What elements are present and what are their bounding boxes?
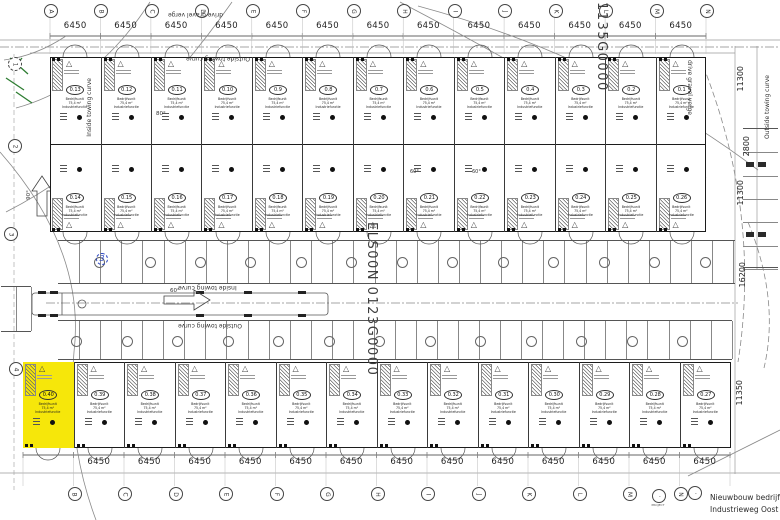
warning-triangle-icon: △ <box>370 60 376 68</box>
meter-box <box>159 228 162 231</box>
fixture-mark <box>691 424 698 425</box>
grid-bubble-left: 3 <box>4 227 18 241</box>
fixture-mark <box>667 116 674 117</box>
grid-letter: 3 <box>7 232 14 236</box>
unit-0-8[interactable]: △0.8Bedrijfsunit 75,4 m² Industriefuncti… <box>302 57 353 145</box>
parking-number-circle <box>475 336 486 347</box>
unit-number: 0.2 <box>622 85 640 95</box>
meter-box <box>664 228 667 231</box>
parking-number-circle <box>599 257 610 268</box>
parking-divider <box>628 241 629 283</box>
meter-box <box>507 228 510 231</box>
stair-hatch <box>507 59 518 91</box>
unit-0-30[interactable]: △0.30Bedrijfsunit 75,4 m² Industriefunct… <box>528 362 579 448</box>
unit-number: 0.26 <box>673 193 691 203</box>
grid-letter: K <box>552 9 559 13</box>
unit-0-10[interactable]: △0.10Bedrijfsunit 75,4 m² Industriefunct… <box>201 57 252 145</box>
parking-divider <box>311 321 312 359</box>
door-swing-icon <box>265 44 291 57</box>
microtext-line <box>89 375 104 376</box>
meter-box <box>582 444 585 447</box>
unit-0-39[interactable]: △0.39Bedrijfsunit 75,4 m² Industriefunct… <box>74 362 125 448</box>
street-label-top: drive gravel verge <box>168 11 223 18</box>
unit-0-7[interactable]: △0.7Bedrijfsunit 75,4 m² Industriefuncti… <box>353 57 404 145</box>
microtext-line <box>317 218 332 219</box>
parking-number-circle <box>296 257 307 268</box>
parking-divider <box>437 321 438 359</box>
unit-0-32[interactable]: △0.32Bedrijfsunit 75,4 m² Industriefunct… <box>427 362 478 448</box>
microtext-line <box>139 378 154 379</box>
fixture-mark <box>539 424 546 425</box>
fixture-mark <box>135 421 142 422</box>
parking-number-circle <box>172 336 183 347</box>
sanitary-dot-icon <box>405 420 410 425</box>
stair-hatch <box>279 364 290 396</box>
parking-number-circle <box>627 336 638 347</box>
fixture-mark <box>515 168 522 169</box>
parking-divider <box>227 241 228 283</box>
warning-triangle-icon: △ <box>697 365 703 373</box>
fixture-mark <box>566 119 573 120</box>
warning-triangle-icon: △ <box>343 365 349 373</box>
parking-number-circle <box>677 336 688 347</box>
unit-info: Bedrijfsunit 75,4 m² Industriefunctie <box>204 97 250 109</box>
meter-box <box>233 444 236 447</box>
microtext-line <box>216 70 231 71</box>
dimension-label: 6450 <box>161 21 191 31</box>
warning-triangle-icon: △ <box>495 365 501 373</box>
microtext-line <box>620 70 635 71</box>
meter-box <box>310 228 313 231</box>
parking-divider <box>521 321 522 359</box>
stair-hatch <box>582 364 593 396</box>
unit-0-14[interactable]: △0.14Bedrijfsunit 75,4 m² Industriefunct… <box>50 145 101 232</box>
dimension-label: 6450 <box>565 21 595 31</box>
warning-triangle-icon: △ <box>471 60 477 68</box>
grid-bubble-top: G <box>347 4 361 18</box>
unit-0-12[interactable]: △0.12Bedrijfsunit 75,4 m² Industriefunct… <box>101 57 152 145</box>
parking-divider <box>743 269 778 270</box>
unit-0-28[interactable]: △0.28Bedrijfsunit 75,4 m² Industriefunct… <box>629 362 680 448</box>
grid-bubble-bottom: C <box>118 487 132 501</box>
fixture-mark <box>590 424 597 425</box>
unit-number: 0.19 <box>319 193 337 203</box>
parking-divider <box>691 241 692 283</box>
sanitary-dot-icon <box>280 115 285 120</box>
warning-triangle-icon: △ <box>471 221 477 229</box>
microtext-line <box>469 218 484 219</box>
fixture-mark <box>263 119 270 120</box>
grid-letter: B <box>71 492 78 496</box>
warning-triangle-icon: △ <box>66 221 72 229</box>
floorplan-page: { "drawing": { "title_line1": "Nieuwbouw… <box>0 0 780 520</box>
fixture-mark <box>515 171 522 172</box>
grid-letter: 4 <box>12 367 19 371</box>
unit-0-2[interactable]: △0.2Bedrijfsunit 75,4 m² Industriefuncti… <box>605 57 656 145</box>
fixture-mark <box>112 168 119 169</box>
fixture-mark <box>515 116 522 117</box>
unit-number: 0.22 <box>471 193 489 203</box>
warning-triangle-icon: △ <box>319 221 325 229</box>
fixture-mark <box>236 421 243 422</box>
microtext-line <box>594 378 609 379</box>
unit-0-27[interactable]: △0.27Bedrijfsunit 75,4 m² Industriefunct… <box>680 362 731 448</box>
warning-triangle-icon: △ <box>269 221 275 229</box>
sanitary-dot-icon <box>684 115 689 120</box>
parking-number-circle <box>273 336 284 347</box>
fixture-mark <box>60 165 67 166</box>
dimension-label: 6450 <box>84 457 114 467</box>
unit-info: Bedrijfsunit 75,4 m² Industriefunctie <box>582 402 628 414</box>
meter-box <box>255 228 258 231</box>
fixture-mark <box>287 418 294 419</box>
unit-number: 0.38 <box>141 390 159 400</box>
fixture-mark <box>112 119 119 120</box>
warning-triangle-icon: △ <box>420 60 426 68</box>
meter-box <box>305 228 308 231</box>
sanitary-dot-icon <box>633 115 638 120</box>
fixture-mark <box>566 116 573 117</box>
fixture-mark <box>465 165 472 166</box>
unit-0-36[interactable]: △0.36Bedrijfsunit 75,4 m² Industriefunct… <box>225 362 276 448</box>
grid-bubble-left: 1 <box>8 57 22 71</box>
warning-triangle-icon: △ <box>673 221 679 229</box>
fixture-mark <box>313 171 320 172</box>
grid-bubble-top: C <box>145 4 159 18</box>
warning-triangle-icon: △ <box>622 221 628 229</box>
meter-box <box>52 58 55 61</box>
grid-bubble-top: K <box>549 4 563 18</box>
parking-divider <box>669 321 670 359</box>
unit-0-6[interactable]: △0.6Bedrijfsunit 75,4 m² Industriefuncti… <box>403 57 454 145</box>
sanitary-dot-icon <box>280 167 285 172</box>
meter-box <box>411 58 414 61</box>
unit-0-18[interactable]: △0.18Bedrijfsunit 75,4 m² Industriefunct… <box>252 145 303 232</box>
dimension-label-vertical: 11300 <box>736 66 745 91</box>
warning-triangle-icon: △ <box>521 60 527 68</box>
fixture-mark <box>640 421 647 422</box>
stair-hatch <box>255 59 266 91</box>
sanitary-dot-icon <box>556 420 561 425</box>
fixture-mark <box>616 119 623 120</box>
microtext-line <box>267 70 282 71</box>
stair-hatch <box>380 364 391 396</box>
parking-divider <box>142 241 143 283</box>
unit-0-33[interactable]: △0.33Bedrijfsunit 75,4 m² Industriefunct… <box>377 362 428 448</box>
dimension-label: 6450 <box>134 457 164 467</box>
unit-0-17[interactable]: △0.17Bedrijfsunit 75,4 m² Industriefunct… <box>201 145 252 232</box>
sanitary-dot-icon <box>129 115 134 120</box>
sanitary-dot-icon <box>607 420 612 425</box>
meter-box <box>255 58 258 61</box>
fixture-mark <box>566 171 573 172</box>
sanitary-dot-icon <box>77 115 82 120</box>
meter-box <box>334 444 337 447</box>
unit-info: Bedrijfsunit 75,4 m² Industriefunctie <box>52 205 98 217</box>
parking-divider <box>459 241 460 283</box>
stair-hatch <box>632 364 643 396</box>
dimension-label: 6450 <box>615 21 645 31</box>
stair-hatch <box>52 59 63 91</box>
microtext-line <box>37 375 52 376</box>
meter-box <box>683 444 686 447</box>
fixture-mark <box>162 168 169 169</box>
meter-box <box>563 228 566 231</box>
parking-divider <box>79 241 80 283</box>
unit-number: 0.34 <box>343 390 361 400</box>
fixture-mark <box>162 119 169 120</box>
unit-0-40[interactable]: △0.40Bedrijfsunit 75,4 m² Industriefunct… <box>23 362 74 448</box>
microtext-line <box>695 378 710 379</box>
unit-0-38[interactable]: △0.38Bedrijfsunit 75,4 m² Industriefunct… <box>124 362 175 448</box>
unit-info: Bedrijfsunit 75,4 m² Industriefunctie <box>632 402 678 414</box>
unit-info: Bedrijfsunit 75,4 m² Industriefunctie <box>305 97 351 109</box>
microtext-line <box>418 70 433 71</box>
parking-divider <box>31 287 32 331</box>
grid-bubble-left: 4 <box>9 362 23 376</box>
warning-triangle-icon: △ <box>521 221 527 229</box>
parking-divider <box>290 241 291 283</box>
fixture-mark <box>566 168 573 169</box>
unit-info: Bedrijfsunit 75,4 m² Industriefunctie <box>25 402 71 414</box>
fixture-mark <box>691 421 698 422</box>
grid-letter: L <box>576 492 583 495</box>
sanitary-dot-icon <box>684 167 689 172</box>
unit-number: 0.10 <box>219 85 237 95</box>
unit-0-5[interactable]: △0.5Bedrijfsunit 75,4 m² Industriefuncti… <box>454 57 505 145</box>
door-swing-icon <box>114 232 140 245</box>
unit-info: Bedrijfsunit 75,4 m² Industriefunctie <box>507 97 553 109</box>
unit-number: 0.16 <box>168 193 186 203</box>
stair-hatch <box>531 364 542 396</box>
grid-bubble-left: 2 <box>8 139 22 153</box>
fixture-mark <box>438 421 445 422</box>
unit-number: 0.15 <box>118 193 136 203</box>
microtext-line <box>519 218 534 219</box>
fixture-mark <box>337 418 344 419</box>
parking-divider <box>690 321 691 359</box>
grid-letter: C <box>121 492 128 496</box>
fixture-mark <box>616 116 623 117</box>
parking-divider <box>100 321 101 359</box>
unit-0-37[interactable]: △0.37Bedrijfsunit 75,4 m² Industriefunct… <box>175 362 226 448</box>
fixture-mark <box>186 424 193 425</box>
meter-box <box>204 228 207 231</box>
site-plan: drive gravel verge Outside towing curve … <box>0 0 780 520</box>
warning-triangle-icon: △ <box>572 60 578 68</box>
unit-info: Bedrijfsunit 75,4 m² Industriefunctie <box>356 205 402 217</box>
meter-box <box>104 58 107 61</box>
grid-bubble-bottom: L <box>573 487 587 501</box>
unit-0-1[interactable]: △0.1Bedrijfsunit 75,4 m² Industriefuncti… <box>656 57 707 145</box>
fixture-mark <box>364 168 371 169</box>
stair-hatch <box>356 59 367 91</box>
parking-divider <box>542 321 543 359</box>
parking-number-circle <box>71 336 82 347</box>
parking-divider <box>647 321 648 359</box>
unit-0-23[interactable]: △0.23Bedrijfsunit 75,4 m² Industriefunct… <box>504 145 555 232</box>
unit-info: Bedrijfsunit 75,4 m² Industriefunctie <box>329 402 375 414</box>
fixture-mark <box>263 171 270 172</box>
parking-divider <box>743 176 778 177</box>
fixture-mark <box>313 116 320 117</box>
unit-0-15[interactable]: △0.15Bedrijfsunit 75,4 m² Industriefunct… <box>101 145 152 232</box>
fixture-mark <box>640 424 647 425</box>
unit-0-4[interactable]: △0.4Bedrijfsunit 75,4 m² Industriefuncti… <box>504 57 555 145</box>
grid-bubble-bottom: N <box>674 487 688 501</box>
grid-letter: F <box>300 9 307 12</box>
unit-info: Bedrijfsunit 75,4 m² Industriefunctie <box>481 402 527 414</box>
fixture-mark <box>85 421 92 422</box>
microtext-line <box>267 73 282 74</box>
microtext-line <box>240 378 255 379</box>
microtext-line <box>37 378 52 379</box>
microtext-line <box>89 378 104 379</box>
unit-info: Bedrijfsunit 75,4 m² Industriefunctie <box>255 97 301 109</box>
sanitary-dot-icon <box>152 420 157 425</box>
parking-divider <box>417 241 418 283</box>
meter-box <box>406 58 409 61</box>
project-title-line2: Industrieweg Oost te E <box>710 504 780 516</box>
meter-box <box>109 228 112 231</box>
grid-bubble-bottom: E <box>219 487 233 501</box>
meter-box <box>82 444 85 447</box>
unit-0-20[interactable]: △0.20Bedrijfsunit 75,4 m² Industriefunct… <box>353 145 404 232</box>
curve-label-inside: Inside towing curve <box>178 284 237 291</box>
parking-number-circle <box>425 336 436 347</box>
warning-triangle-icon: △ <box>572 221 578 229</box>
microtext-line <box>341 375 356 376</box>
parking-number-circle <box>498 257 509 268</box>
microtext-line <box>392 375 407 376</box>
unit-0-35[interactable]: △0.35Bedrijfsunit 75,4 m² Industriefunct… <box>276 362 327 448</box>
warning-triangle-icon: △ <box>293 365 299 373</box>
grid-letter: D <box>172 492 179 497</box>
meter-box <box>77 444 80 447</box>
parking-divider <box>500 321 501 359</box>
unit-number: 0.14 <box>66 193 84 203</box>
door-swing-icon <box>366 44 392 57</box>
fixture-mark <box>388 421 395 422</box>
fixture-mark <box>667 171 674 172</box>
unit-0-26[interactable]: △0.26Bedrijfsunit 75,4 m² Industriefunct… <box>656 145 707 232</box>
unit-info: Bedrijfsunit 75,4 m² Industriefunctie <box>457 97 503 109</box>
sanitary-dot-icon <box>129 167 134 172</box>
unit-0-24[interactable]: △0.24Bedrijfsunit 75,4 m² Industriefunct… <box>555 145 606 232</box>
grid-letter: M <box>653 8 660 13</box>
unit-number: 0.36 <box>242 390 260 400</box>
meter-box <box>57 58 60 61</box>
sanitary-dot-icon <box>431 167 436 172</box>
parking-divider <box>163 321 164 359</box>
fixture-mark <box>388 424 395 425</box>
dimension-label: 6450 <box>690 457 720 467</box>
stair-hatch <box>154 59 165 91</box>
fixture-mark <box>414 113 421 114</box>
fixture-mark <box>33 421 40 422</box>
meter-box <box>260 58 263 61</box>
unit-0-22[interactable]: △0.22Bedrijfsunit 75,4 m² Industriefunct… <box>454 145 505 232</box>
project-title-block: Nieuwbouw bedrijfsunit Industrieweg Oost… <box>710 492 780 516</box>
unit-0-31[interactable]: △0.31Bedrijfsunit 75,4 m² Industriefunct… <box>478 362 529 448</box>
fixture-mark <box>667 165 674 166</box>
microtext-line <box>317 73 332 74</box>
sanitary-dot-icon <box>633 167 638 172</box>
microtext-line <box>543 378 558 379</box>
meter-box <box>637 444 640 447</box>
dimension-label: 6450 <box>589 457 619 467</box>
dimension-label: 6450 <box>437 457 467 467</box>
microtext-line <box>442 375 457 376</box>
unit-info: Bedrijfsunit 75,4 m² Industriefunctie <box>406 205 452 217</box>
fixture-mark <box>566 113 573 114</box>
meter-box <box>154 228 157 231</box>
unit-number: 0.18 <box>269 193 287 203</box>
parking-divider <box>16 287 17 331</box>
warning-triangle-icon: △ <box>168 221 174 229</box>
meter-box <box>632 444 635 447</box>
curve-label-top: Outside towing curve <box>186 55 250 62</box>
title-bubble-1: · <box>652 489 666 503</box>
grid-letter: H <box>374 492 381 497</box>
fixture-mark <box>85 424 92 425</box>
unit-info: Bedrijfsunit 75,4 m² Industriefunctie <box>457 205 503 217</box>
warning-triangle-icon: △ <box>596 365 602 373</box>
unit-info: Bedrijfsunit 75,4 m² Industriefunctie <box>356 97 402 109</box>
meter-box <box>159 58 162 61</box>
fixture-mark <box>212 168 219 169</box>
dimension-label: 6450 <box>488 457 518 467</box>
stair-hatch <box>204 59 215 91</box>
grid-bubble-bottom: M <box>623 487 637 501</box>
unit-info: Bedrijfsunit 75,4 m² Industriefunctie <box>77 402 123 414</box>
stair-hatch <box>178 364 189 396</box>
dimension-label: 6450 <box>111 21 141 31</box>
grid-letter: E <box>222 492 229 496</box>
microtext-line <box>671 218 686 219</box>
angle-label-small-a: 60° <box>410 169 419 175</box>
microtext-line <box>442 378 457 379</box>
grid-letter: I <box>425 493 432 495</box>
microtext-line <box>368 70 383 71</box>
fixture-mark <box>236 424 243 425</box>
project-title-line1: Nieuwbouw bedrijfsunit <box>710 492 780 504</box>
unit-0-16[interactable]: △0.16Bedrijfsunit 75,4 m² Industriefunct… <box>151 145 202 232</box>
door-swing-icon <box>568 44 594 57</box>
watermark-top: 1135G0000 <box>594 2 609 92</box>
grid-bubble-top: I <box>448 4 462 18</box>
meter-box <box>563 58 566 61</box>
door-swing-icon <box>467 44 493 57</box>
meter-box <box>481 444 484 447</box>
sanitary-dot-icon <box>253 420 258 425</box>
microtext-line <box>469 70 484 71</box>
dimension-label: 6450 <box>413 21 443 31</box>
sanitary-dot-icon <box>229 167 234 172</box>
unit-0-11[interactable]: △0.11Bedrijfsunit 75,4 m² Industriefunct… <box>151 57 202 145</box>
unit-0-21[interactable]: △0.21Bedrijfsunit 75,4 m² Industriefunct… <box>403 145 454 232</box>
sanitary-dot-icon <box>506 420 511 425</box>
unit-0-29[interactable]: △0.29Bedrijfsunit 75,4 m² Industriefunct… <box>579 362 630 448</box>
sanitary-dot-icon <box>77 167 82 172</box>
unit-0-19[interactable]: △0.19Bedrijfsunit 75,4 m² Industriefunct… <box>302 145 353 232</box>
meter-box <box>536 444 539 447</box>
unit-0-25[interactable]: △0.25Bedrijfsunit 75,4 m² Industriefunct… <box>605 145 656 232</box>
dimension-label: 6450 <box>387 457 417 467</box>
unit-0-9[interactable]: △0.9Bedrijfsunit 75,4 m² Industriefuncti… <box>252 57 303 145</box>
parking-divider <box>269 321 270 359</box>
unit-info: Bedrijfsunit 75,4 m² Industriefunctie <box>154 97 200 109</box>
